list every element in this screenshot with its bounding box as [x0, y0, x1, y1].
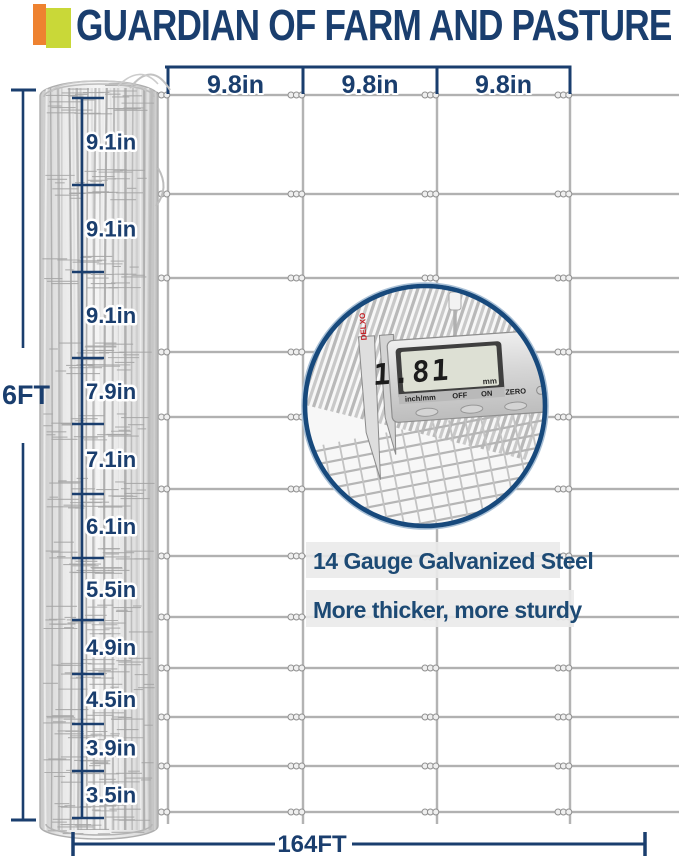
segment-label: 7.1in	[86, 447, 136, 472]
caption-line2: More thicker, more sturdy	[313, 597, 582, 623]
brand-bar-orange-icon	[33, 4, 46, 45]
column-spacing-label: 9.8in	[475, 71, 532, 99]
segment-label: 7.9in	[86, 379, 136, 404]
segment-label: 4.9in	[86, 635, 136, 660]
segment-label: 9.1in	[86, 217, 136, 242]
column-spacing-label: 9.8in	[342, 71, 399, 99]
segment-label: 3.5in	[86, 783, 136, 808]
segment-label: 5.5in	[86, 577, 136, 602]
segment-label: 3.9in	[86, 736, 136, 761]
fence-diagram: 9.8in9.8in9.8in9.1in9.1in9.1in7.9in7.1in…	[0, 0, 679, 858]
column-spacing-label: 9.8in	[207, 71, 264, 99]
total-height-label: 6FT	[2, 380, 51, 410]
caliper-button-label: OFF	[452, 390, 468, 400]
caliper-inset: 1.81mminch/mmOFFONZERODELXO	[253, 215, 596, 589]
caliper-display-value: 1.81	[373, 352, 452, 391]
caliper-button-label: ON	[481, 389, 493, 399]
caption-block: 14 Gauge Galvanized SteelMore thicker, m…	[306, 542, 593, 627]
caliper-display-unit: mm	[482, 376, 497, 386]
page-title: GUARDIAN OF FARM AND PASTURE	[76, 1, 672, 51]
product-infographic: GUARDIAN OF FARM AND PASTURE 9.8in9.8in9…	[0, 0, 679, 858]
segment-label: 9.1in	[86, 303, 136, 328]
segment-label: 9.1in	[86, 130, 136, 155]
segment-label: 4.5in	[86, 687, 136, 712]
header: GUARDIAN OF FARM AND PASTURE	[0, 0, 679, 60]
caption-line1: 14 Gauge Galvanized Steel	[313, 548, 593, 574]
caliper-button-label: ZERO	[505, 386, 527, 396]
total-width-label: 164FT	[277, 831, 347, 858]
width-dimension: 164FT	[73, 831, 645, 858]
top-spacing-dimension: 9.8in9.8in9.8in	[165, 67, 572, 99]
segment-label: 6.1in	[86, 514, 136, 539]
brand-bar-green-icon	[46, 8, 71, 48]
caliper-brand: DELXO	[358, 312, 369, 340]
